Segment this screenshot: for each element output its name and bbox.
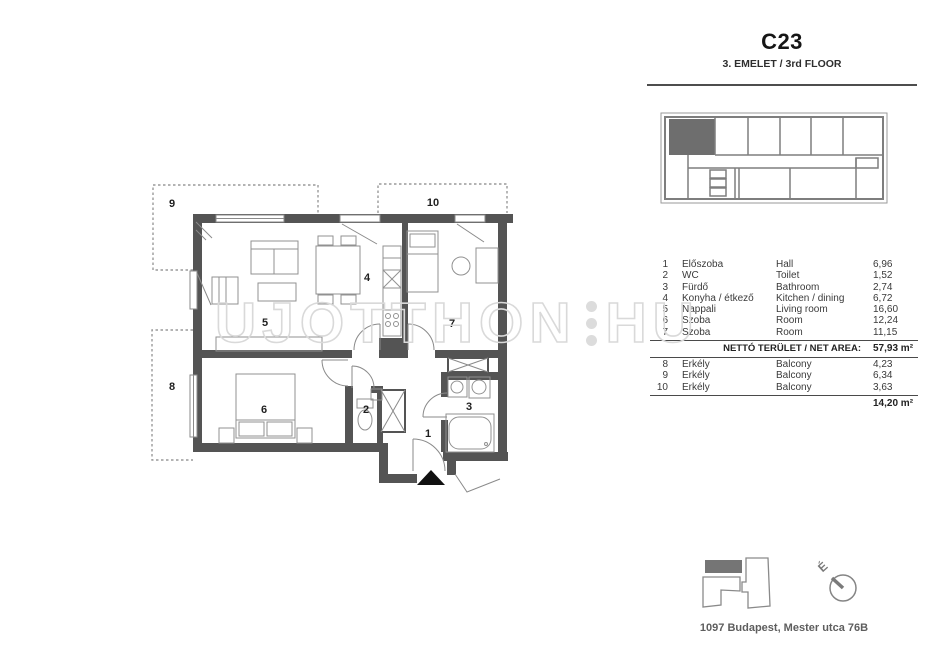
room-label-4: 4 <box>364 272 371 284</box>
sofa <box>251 241 298 274</box>
porch-line <box>455 474 500 492</box>
room-label-10: 10 <box>427 197 439 209</box>
desk-chair <box>452 257 470 275</box>
bed-room7 <box>407 231 438 292</box>
room-label-6: 6 <box>261 404 267 416</box>
balcony-10-outline <box>378 184 507 213</box>
kitchen-counter <box>383 246 401 336</box>
dining-table <box>316 236 360 304</box>
shaft-boxes <box>381 358 488 432</box>
tv-bench <box>212 277 238 304</box>
sideboard <box>216 337 322 351</box>
room-label-1: 1 <box>425 428 431 440</box>
room-label-2: 2 <box>363 404 369 416</box>
walls <box>193 214 513 483</box>
window-sashes <box>196 222 484 305</box>
floor-plan: 1 2 3 4 5 6 7 8 9 10 <box>0 0 937 657</box>
room-label-5: 5 <box>262 317 268 329</box>
windows <box>190 215 485 437</box>
desk <box>476 248 498 283</box>
room-label-8: 8 <box>169 381 175 393</box>
coffee-table <box>258 283 296 301</box>
room-label-7: 7 <box>449 318 455 330</box>
balcony-8-outline <box>152 330 193 460</box>
floorplan-page: 1 2 3 4 5 6 7 8 9 10 C23 3. EMELET / 3rd… <box>0 0 937 657</box>
room-label-3: 3 <box>466 401 472 413</box>
entrance-arrow <box>417 470 445 485</box>
balcony-9-outline <box>153 185 318 270</box>
washing-machine <box>469 377 490 398</box>
bathtub <box>446 414 494 452</box>
room-label-9: 9 <box>169 198 175 210</box>
